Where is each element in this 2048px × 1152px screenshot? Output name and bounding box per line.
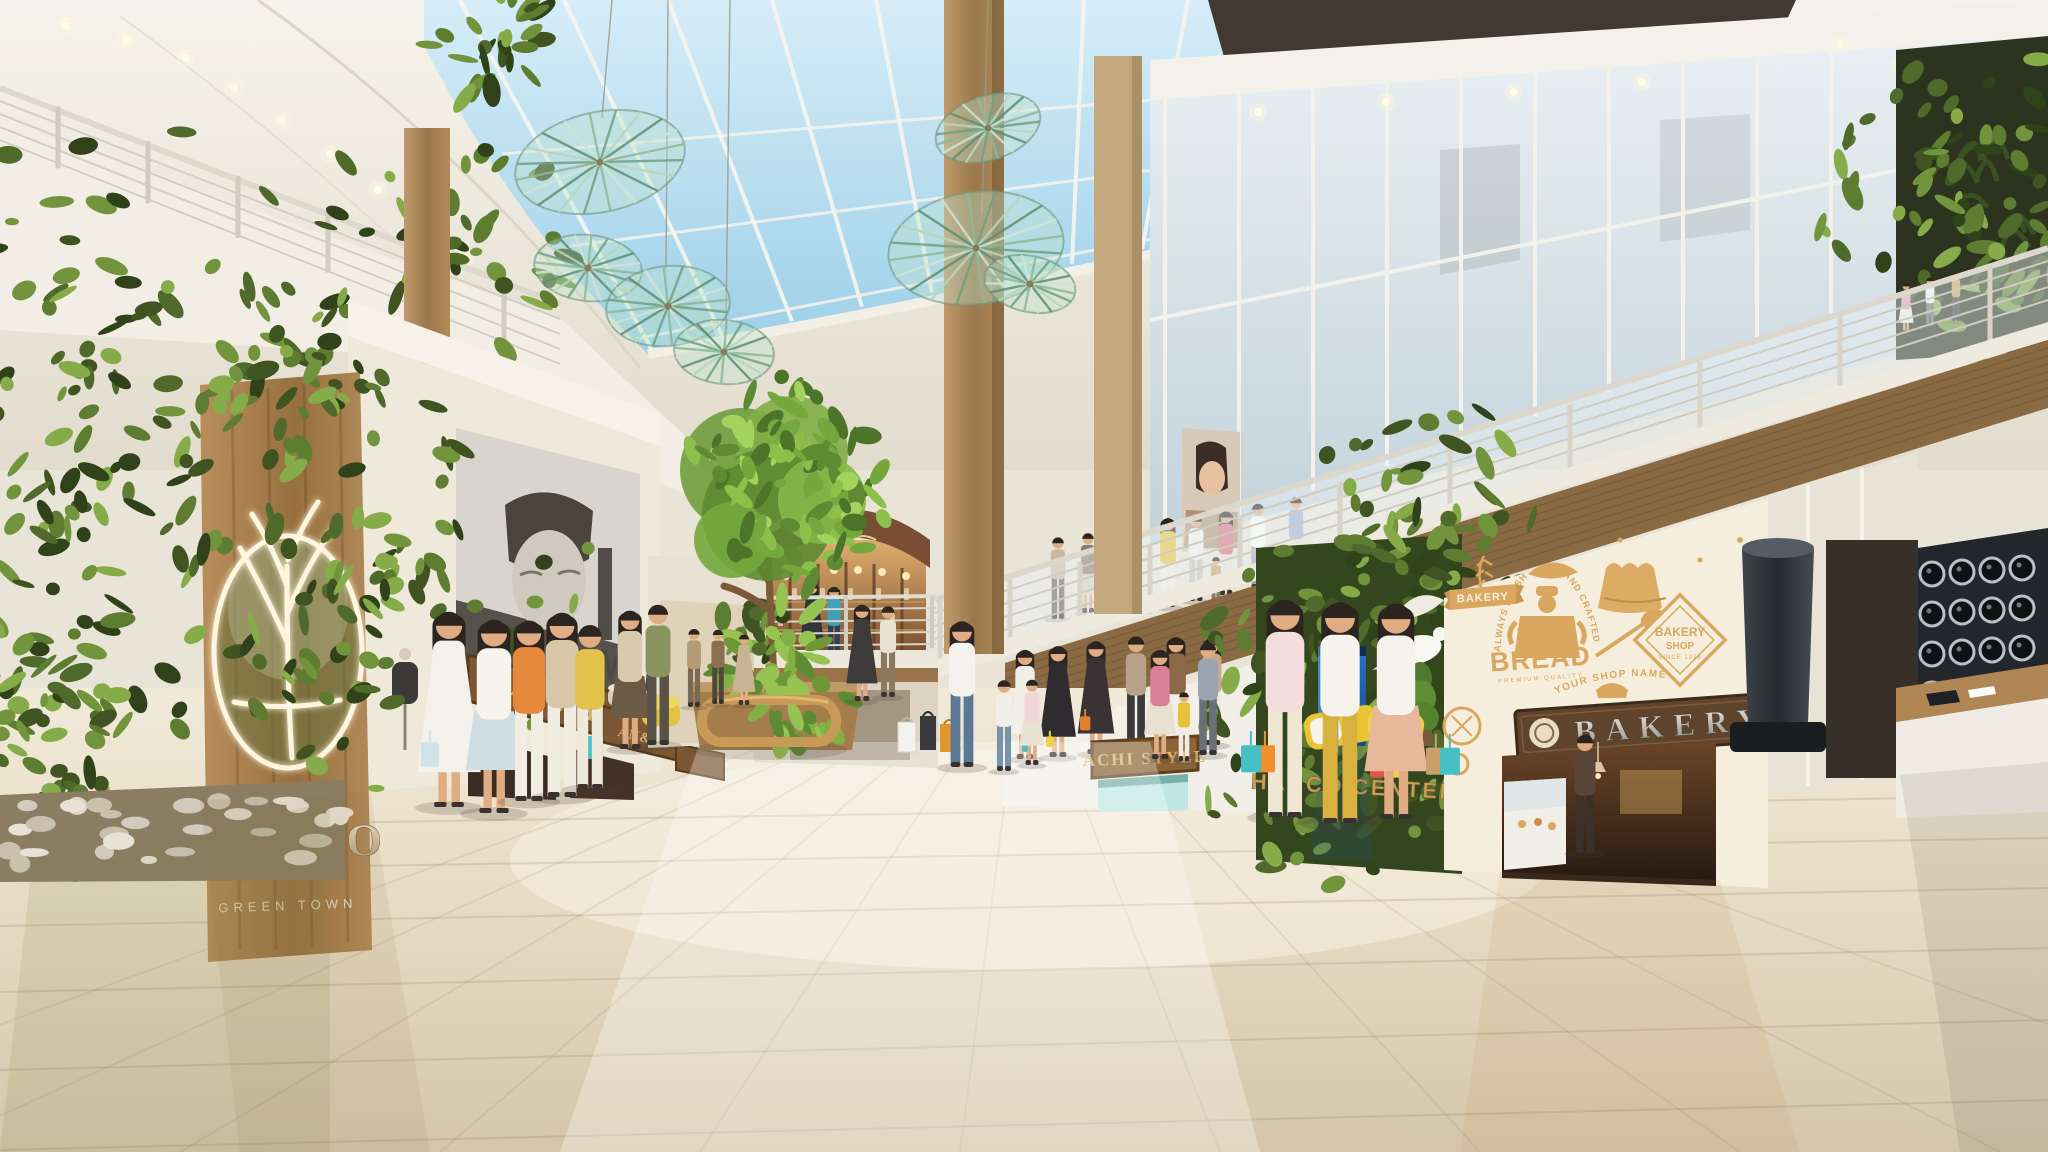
badge-line3: SINCE 1978 (1658, 655, 1701, 661)
mall-atrium-render: MAN FASHION MAN STYLE AN&GI (0, 0, 2048, 1152)
pastry-display-case (1504, 778, 1566, 870)
badge-line1: BAKERY (1655, 625, 1705, 639)
scene-canvas: MAN FASHION MAN STYLE AN&GI (0, 0, 2048, 1152)
right-electronics-shop (1730, 452, 2048, 818)
badge-line2: SHOP (1666, 641, 1695, 652)
bakery-entrance (1502, 742, 1716, 886)
